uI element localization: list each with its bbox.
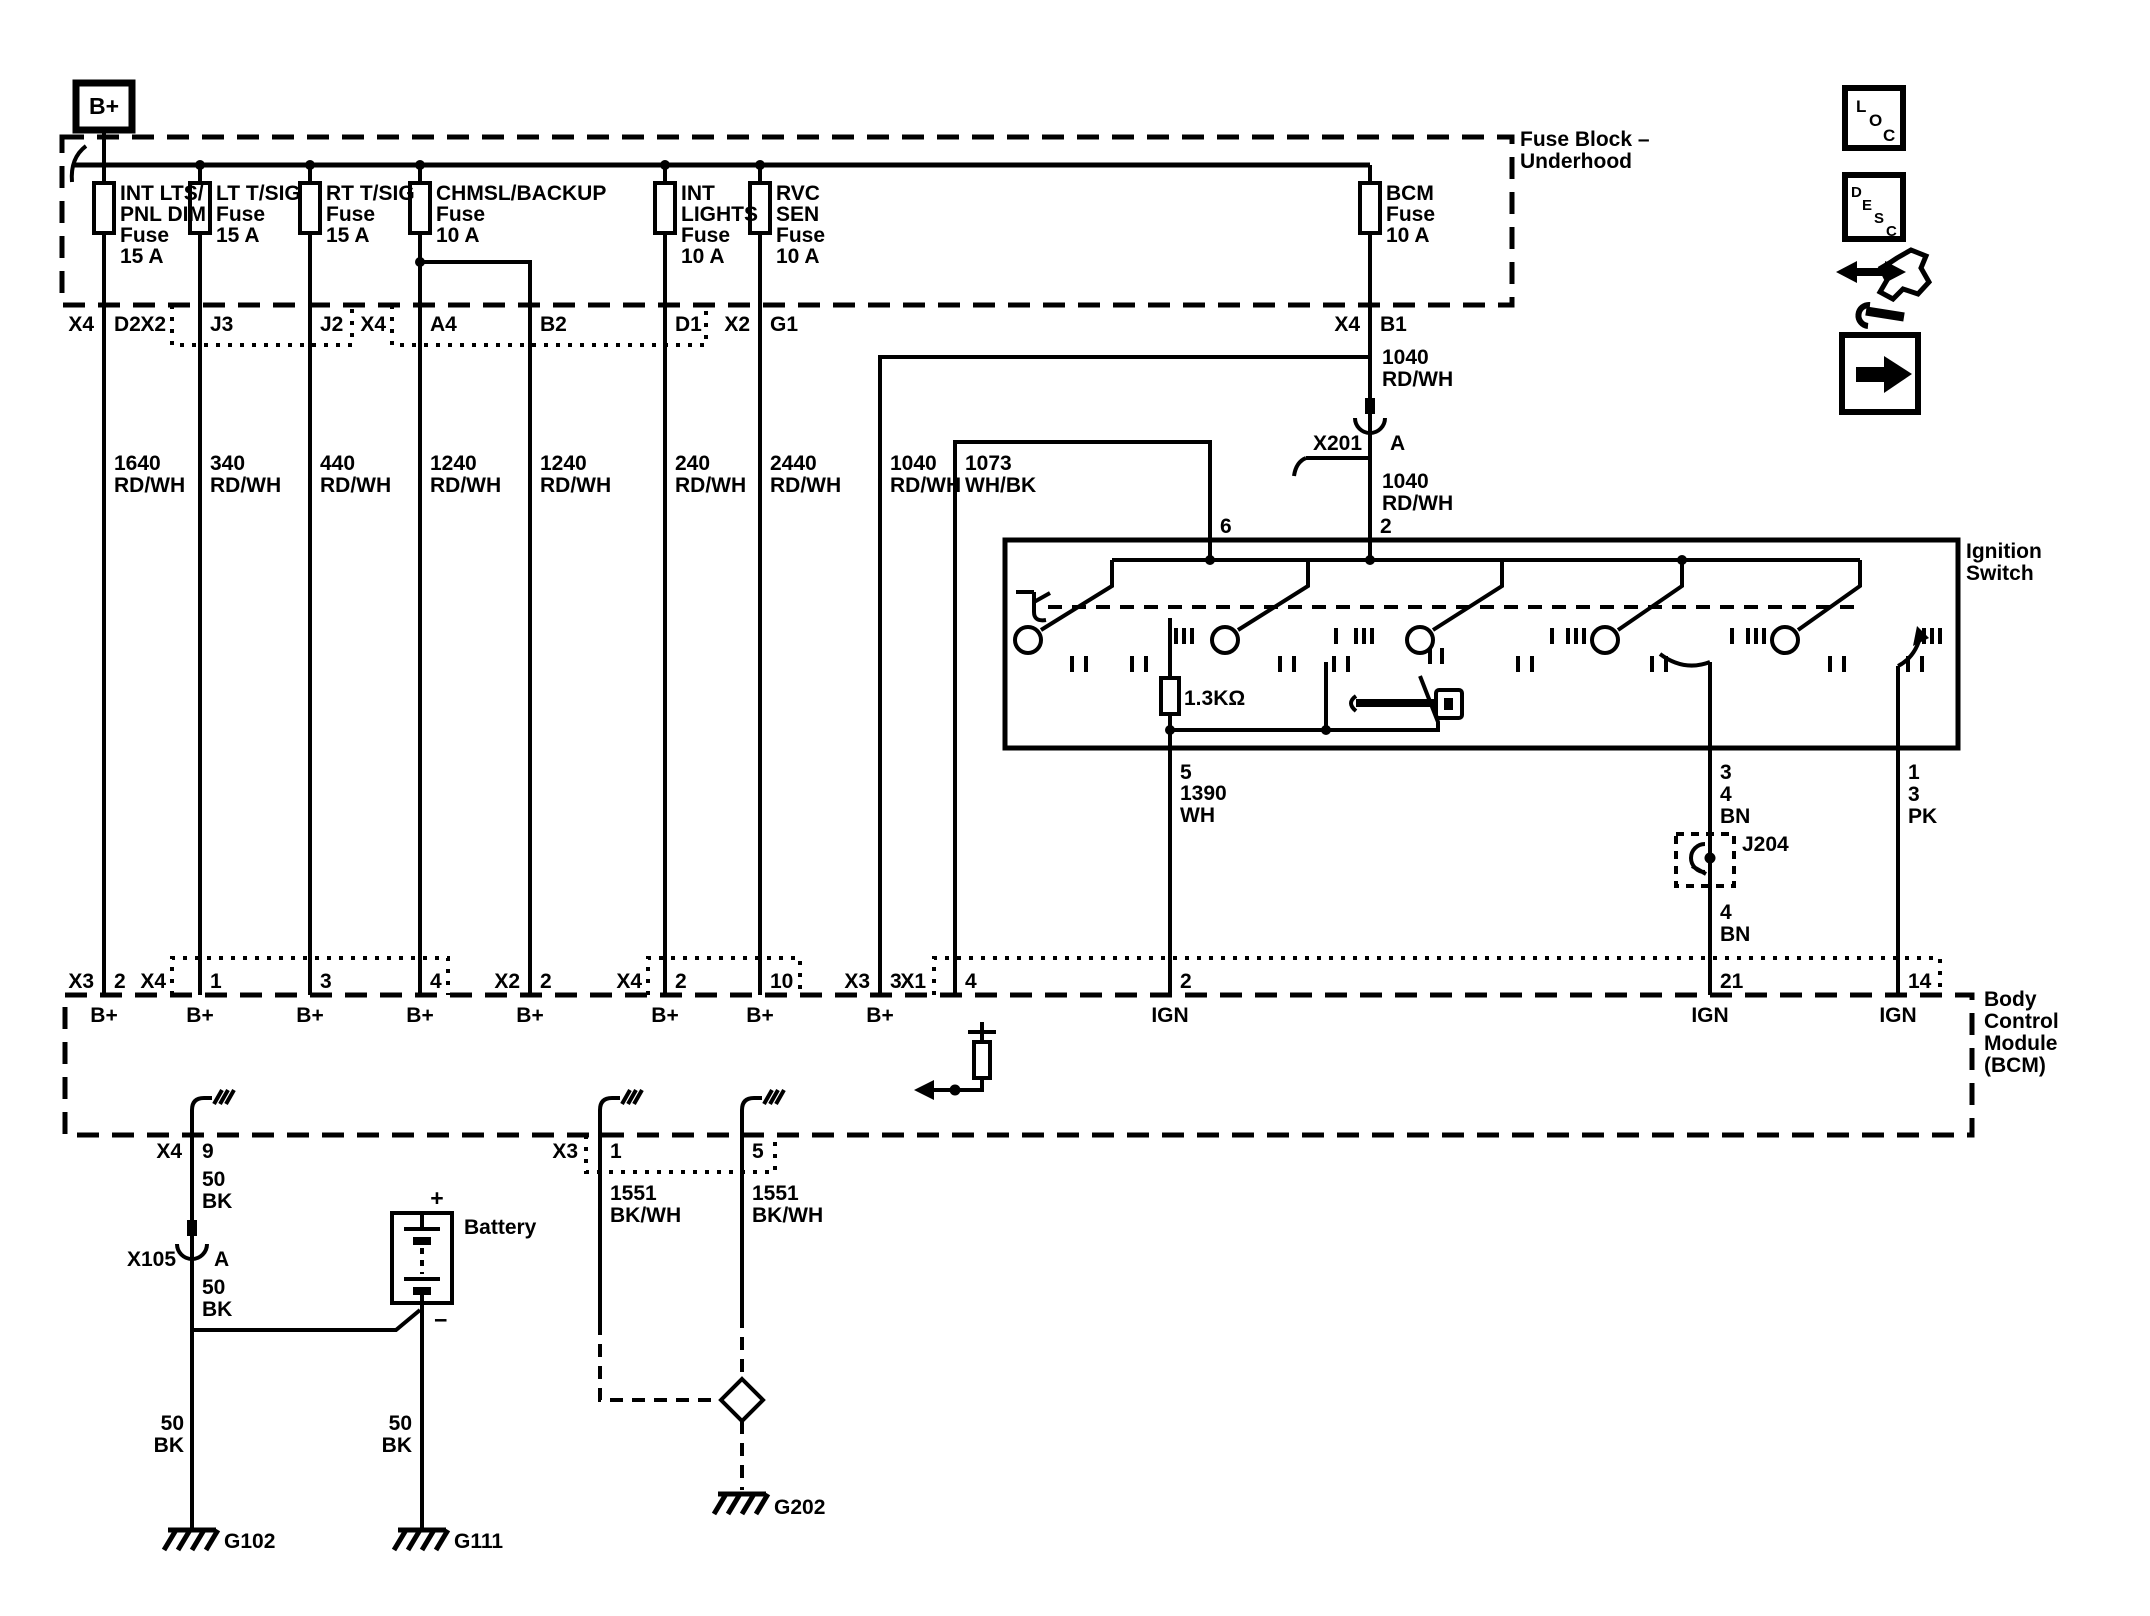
svg-text:B+: B+ (406, 1004, 433, 1027)
svg-text:Control: Control (1984, 1010, 2059, 1033)
svg-text:Module: Module (1984, 1032, 2058, 1055)
svg-text:RD/WH: RD/WH (675, 474, 746, 497)
svg-text:10 A: 10 A (776, 245, 820, 268)
svg-text:WH: WH (1180, 804, 1215, 827)
svg-text:15 A: 15 A (326, 224, 370, 247)
svg-text:50: 50 (202, 1168, 225, 1191)
svg-text:IGN: IGN (1879, 1004, 1916, 1027)
svg-text:INT: INT (681, 182, 715, 205)
svg-text:1073: 1073 (965, 452, 1012, 475)
wrench-icon (1866, 311, 1904, 317)
svg-text:2: 2 (114, 970, 126, 993)
svg-text:2: 2 (675, 970, 687, 993)
svg-text:RVC: RVC (776, 182, 820, 205)
svg-text:X4: X4 (68, 313, 94, 336)
connector-x105: X105 A (127, 1220, 229, 1271)
svg-text:3: 3 (1720, 761, 1732, 784)
svg-text:10 A: 10 A (1386, 224, 1430, 247)
svg-text:X2: X2 (724, 313, 750, 336)
fuse-bcm (1360, 183, 1380, 233)
svg-text:1240: 1240 (540, 452, 587, 475)
svg-text:E: E (1862, 197, 1872, 214)
bcm-border (65, 995, 1972, 1135)
svg-text:X4: X4 (156, 1140, 182, 1163)
svg-text:BK: BK (202, 1298, 232, 1321)
svg-text:Fuse: Fuse (1386, 203, 1435, 226)
svg-text:B+: B+ (866, 1004, 893, 1027)
ignition-switch-border (1005, 540, 1958, 748)
x201-terminal-icon (1365, 398, 1375, 414)
wiring-diagram-page: B+ INT LTS/ PNL DIM Fuse 15 A LT T/SIG F… (0, 0, 2150, 1611)
svg-text:4: 4 (1720, 783, 1732, 806)
svg-text:D1: D1 (675, 313, 702, 336)
svg-text:BK: BK (382, 1434, 412, 1457)
svg-text:5: 5 (1180, 761, 1192, 784)
desc-button[interactable]: D E S C (1845, 175, 1903, 240)
fuse-int-lts (94, 183, 114, 233)
svg-text:4: 4 (965, 970, 977, 993)
pin-6-label: 6 (1220, 515, 1232, 538)
svg-text:1040: 1040 (1382, 470, 1429, 493)
svg-text:Switch: Switch (1966, 562, 2034, 585)
svg-text:21: 21 (1720, 970, 1744, 993)
svg-text:X3: X3 (552, 1140, 578, 1163)
svg-text:C: C (1886, 223, 1897, 240)
svg-text:3: 3 (320, 970, 332, 993)
svg-text:15 A: 15 A (216, 224, 260, 247)
svg-text:BK/WH: BK/WH (752, 1204, 823, 1227)
svg-text:RD/WH: RD/WH (114, 474, 185, 497)
svg-text:X4: X4 (140, 970, 166, 993)
ground-circuits: 50BK X105 A 50BK 50BK 50BK + Battery − 1… (127, 1135, 825, 1553)
svg-text:1: 1 (610, 1140, 622, 1163)
svg-text:4: 4 (1720, 901, 1732, 924)
svg-text:CHMSL/BACKUP: CHMSL/BACKUP (436, 182, 606, 205)
svg-text:Fuse: Fuse (681, 224, 730, 247)
svg-text:RD/WH: RD/WH (210, 474, 281, 497)
svg-text:A4: A4 (430, 313, 457, 336)
svg-text:X1: X1 (900, 970, 926, 993)
svg-text:10: 10 (770, 970, 793, 993)
svg-text:J3: J3 (210, 313, 233, 336)
svg-text:Fuse: Fuse (216, 203, 265, 226)
bcm-bottom-pin-row: X49 X31 5 (156, 1135, 775, 1172)
svg-text:X3: X3 (844, 970, 870, 993)
fuse-rt-tsig (300, 183, 320, 233)
go-to-next-button[interactable] (1842, 335, 1918, 412)
svg-text:B+: B+ (90, 1004, 117, 1027)
arc-arrowhead (1913, 626, 1929, 646)
svg-text:O: O (1869, 111, 1882, 130)
svg-text:RD/WH: RD/WH (1382, 368, 1453, 391)
svg-text:B+: B+ (186, 1004, 213, 1027)
svg-text:B+: B+ (296, 1004, 323, 1027)
signal-arrow-icon (914, 1080, 934, 1100)
svg-text:X4: X4 (616, 970, 642, 993)
svg-text:10 A: 10 A (436, 224, 480, 247)
svg-text:BCM: BCM (1386, 182, 1434, 205)
ground-symbol-g111 (394, 1530, 448, 1550)
power-feed-wires (104, 130, 1370, 995)
svg-text:G1: G1 (770, 313, 798, 336)
resistor-1300ohm (1161, 678, 1179, 714)
svg-text:Fuse: Fuse (436, 203, 485, 226)
svg-text:Underhood: Underhood (1520, 150, 1632, 173)
svg-text:340: 340 (210, 452, 245, 475)
svg-text:L: L (1856, 97, 1866, 116)
svg-text:Fuse: Fuse (776, 224, 825, 247)
svg-text:X4: X4 (1334, 313, 1360, 336)
svg-text:J2: J2 (320, 313, 343, 336)
svg-text:B+: B+ (516, 1004, 543, 1027)
bcm-pullup-resistor (974, 1042, 990, 1078)
svg-text:1040: 1040 (890, 452, 937, 475)
svg-text:10 A: 10 A (681, 245, 725, 268)
ground-symbol-g202 (714, 1494, 768, 1514)
svg-text:IGN: IGN (1691, 1004, 1728, 1027)
svg-text:RT T/SIG: RT T/SIG (326, 182, 415, 205)
body-control-module: Body Control Module (BCM) X32 X41 3 4 X2… (65, 958, 2059, 1172)
svg-text:BK/WH: BK/WH (610, 1204, 681, 1227)
svg-text:2: 2 (1180, 970, 1192, 993)
svg-text:4: 4 (430, 970, 442, 993)
ignition-switch: Ignition Switch 6 2 (1005, 515, 2042, 748)
wiring-diagram: B+ INT LTS/ PNL DIM Fuse 15 A LT T/SIG F… (0, 0, 2150, 1611)
right-arrow-icon (1856, 367, 1884, 382)
svg-text:1640: 1640 (114, 452, 161, 475)
svg-text:RD/WH: RD/WH (540, 474, 611, 497)
svg-text:X3: X3 (68, 970, 94, 993)
splice-j204: J204 (1676, 833, 1789, 886)
svg-text:S: S (1874, 210, 1884, 227)
pin-2-label: 2 (1380, 515, 1392, 538)
svg-text:50: 50 (389, 1412, 412, 1435)
svg-text:440: 440 (320, 452, 355, 475)
g202-label: G202 (774, 1496, 825, 1519)
lock-lever-icon (1016, 592, 1050, 620)
svg-text:(BCM): (BCM) (1984, 1054, 2046, 1077)
svg-text:240: 240 (675, 452, 710, 475)
inline-connector-diamond (721, 1379, 763, 1421)
svg-text:C: C (1883, 126, 1895, 145)
switch-arc-crank (1898, 638, 1920, 748)
resistor-value-label: 1.3KΩ (1184, 687, 1245, 710)
svg-text:1: 1 (210, 970, 222, 993)
svg-text:X4: X4 (360, 313, 386, 336)
svg-text:1: 1 (1908, 761, 1920, 784)
svg-text:RD/WH: RD/WH (890, 474, 961, 497)
battery-positive: + (430, 1185, 443, 1211)
svg-text:INT LTS/: INT LTS/ (120, 182, 204, 205)
svg-text:SEN: SEN (776, 203, 819, 226)
svg-text:RD/WH: RD/WH (770, 474, 841, 497)
bcm-internal-circuit (914, 1022, 996, 1100)
svg-text:B2: B2 (540, 313, 567, 336)
svg-text:D2: D2 (114, 313, 141, 336)
svg-text:PNL DIM: PNL DIM (120, 203, 206, 226)
svg-text:BN: BN (1720, 805, 1750, 828)
svg-text:B+: B+ (746, 1004, 773, 1027)
svg-text:BK: BK (154, 1434, 184, 1457)
bcm-top-pin-row: X32 X41 3 4 X22 X42 10 X33 X14 2 21 14 B… (68, 970, 1931, 1027)
fuse-block-connector-row: X4 D2 X2 J3 J2 X4 A4 B2 D1 X2 G1 X4 B1 (68, 305, 1407, 345)
svg-text:5: 5 (752, 1140, 764, 1163)
svg-text:BK: BK (202, 1190, 232, 1213)
svg-text:14: 14 (1908, 970, 1932, 993)
ignition-switch-name: Ignition (1966, 540, 2042, 563)
svg-text:Fuse: Fuse (120, 224, 169, 247)
g102-label: G102 (224, 1530, 275, 1553)
svg-text:D: D (1851, 184, 1862, 201)
switch-position-ticks (1072, 628, 1940, 672)
fuse-block-underhood: B+ INT LTS/ PNL DIM Fuse 15 A LT T/SIG F… (62, 83, 1650, 345)
svg-text:B1: B1 (1380, 313, 1407, 336)
fuse-block-name: Fuse Block – (1520, 128, 1650, 151)
svg-text:X201: X201 (1313, 432, 1362, 455)
svg-text:2: 2 (540, 970, 552, 993)
bcm-internal-grounds (192, 1090, 784, 1135)
svg-text:50: 50 (161, 1412, 184, 1435)
svg-text:1390: 1390 (1180, 782, 1227, 805)
harness-routing-icon[interactable] (1836, 250, 1929, 326)
switch-resistor-branch: 1.3KΩ (1161, 618, 1438, 748)
svg-text:BN: BN (1720, 923, 1750, 946)
svg-text:RD/WH: RD/WH (320, 474, 391, 497)
svg-text:50: 50 (202, 1276, 225, 1299)
splice-x201: X201 A (1294, 398, 1405, 476)
battery: + Battery − (392, 1185, 537, 1333)
svg-text:X2: X2 (140, 313, 166, 336)
svg-text:RD/WH: RD/WH (1382, 492, 1453, 515)
svg-text:X2: X2 (494, 970, 520, 993)
svg-text:A: A (214, 1248, 229, 1271)
svg-text:LIGHTS: LIGHTS (681, 203, 758, 226)
wire-labels: 1640RD/WH 340RD/WH 440RD/WH 1240RD/WH 12… (114, 346, 1453, 515)
svg-text:A: A (1390, 432, 1405, 455)
svg-text:X105: X105 (127, 1248, 176, 1271)
loc-button[interactable]: L O C (1845, 88, 1903, 148)
svg-text:1240: 1240 (430, 452, 477, 475)
svg-text:1551: 1551 (610, 1182, 657, 1205)
svg-text:J204: J204 (1742, 833, 1789, 856)
b-plus-label: B+ (89, 93, 119, 119)
svg-text:WH/BK: WH/BK (965, 474, 1036, 497)
svg-text:2440: 2440 (770, 452, 817, 475)
svg-text:3: 3 (1908, 783, 1920, 806)
g111-label: G111 (454, 1530, 503, 1553)
ground-symbol-g102 (164, 1530, 218, 1550)
svg-text:9: 9 (202, 1140, 214, 1163)
svg-text:LT T/SIG: LT T/SIG (216, 182, 301, 205)
battery-negative: − (434, 1307, 447, 1333)
nav-icons: L O C D E S C (1836, 88, 1929, 412)
bcm-name: Body (1984, 988, 2037, 1011)
svg-text:B+: B+ (651, 1004, 678, 1027)
svg-text:PK: PK (1908, 805, 1937, 828)
svg-text:15 A: 15 A (120, 245, 164, 268)
svg-text:Fuse: Fuse (326, 203, 375, 226)
fuse-int-lights (655, 183, 675, 233)
ignition-key-icon (1351, 690, 1462, 718)
svg-text:IGN: IGN (1151, 1004, 1188, 1027)
x201-reference-line (1294, 458, 1368, 476)
svg-text:1551: 1551 (752, 1182, 799, 1205)
svg-text:1040: 1040 (1382, 346, 1429, 369)
svg-text:RD/WH: RD/WH (430, 474, 501, 497)
battery-label: Battery (464, 1216, 537, 1239)
